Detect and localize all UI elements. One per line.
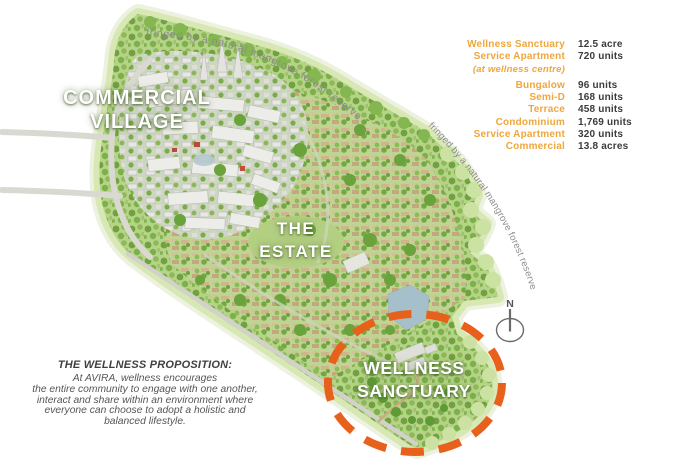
wellness-proposition: THE WELLNESS PROPOSITION: At AVIRA, well…: [14, 359, 276, 428]
masterplan-page: N fringed by a natural mangrove forest r…: [0, 0, 673, 465]
legend-label: Condominium: [453, 117, 565, 129]
legend-row: Service Apartment 720 units: [453, 51, 669, 63]
compass-north-label: N: [506, 298, 514, 310]
legend-value: 13.8 acres: [578, 141, 669, 153]
legend-row: Service Apartment 320 units: [453, 129, 669, 141]
legend-label: Bungalow: [453, 80, 565, 92]
wellness-proposition-line: the entire community to engage with one …: [14, 385, 276, 396]
legend-label: Service Apartment: [453, 129, 565, 141]
legend-label: Commercial: [453, 141, 565, 153]
legend-value: 720 units: [578, 51, 669, 63]
legend-value: [578, 64, 669, 76]
legend-row: Terrace 458 units: [453, 104, 669, 116]
wellness-proposition-line: balanced lifestyle.: [14, 417, 276, 428]
legend: Wellness Sanctuary 12.5 acre Service Apa…: [453, 39, 669, 154]
legend-row: Commercial 13.8 acres: [453, 141, 669, 153]
legend-value: 458 units: [578, 104, 669, 116]
legend-row: Wellness Sanctuary 12.5 acre: [453, 39, 669, 51]
wellness-proposition-title: THE WELLNESS PROPOSITION:: [14, 359, 276, 371]
legend-label: Service Apartment: [453, 51, 565, 63]
legend-label: Terrace: [453, 104, 565, 116]
legend-value: 12.5 acre: [578, 39, 669, 51]
legend-row: Semi-D 168 units: [453, 92, 669, 104]
estate-clearing: [248, 216, 344, 268]
legend-value: 96 units: [578, 80, 669, 92]
legend-row: Bungalow 96 units: [453, 80, 669, 92]
legend-label: Semi-D: [453, 92, 565, 104]
legend-value: 168 units: [578, 92, 669, 104]
legend-label: (at wellness centre): [453, 64, 565, 76]
legend-value: 1,769 units: [578, 117, 669, 129]
legend-value: 320 units: [578, 129, 669, 141]
legend-row-note: (at wellness centre): [453, 64, 669, 76]
legend-label: Wellness Sanctuary: [453, 39, 565, 51]
legend-row: Condominium 1,769 units: [453, 117, 669, 129]
